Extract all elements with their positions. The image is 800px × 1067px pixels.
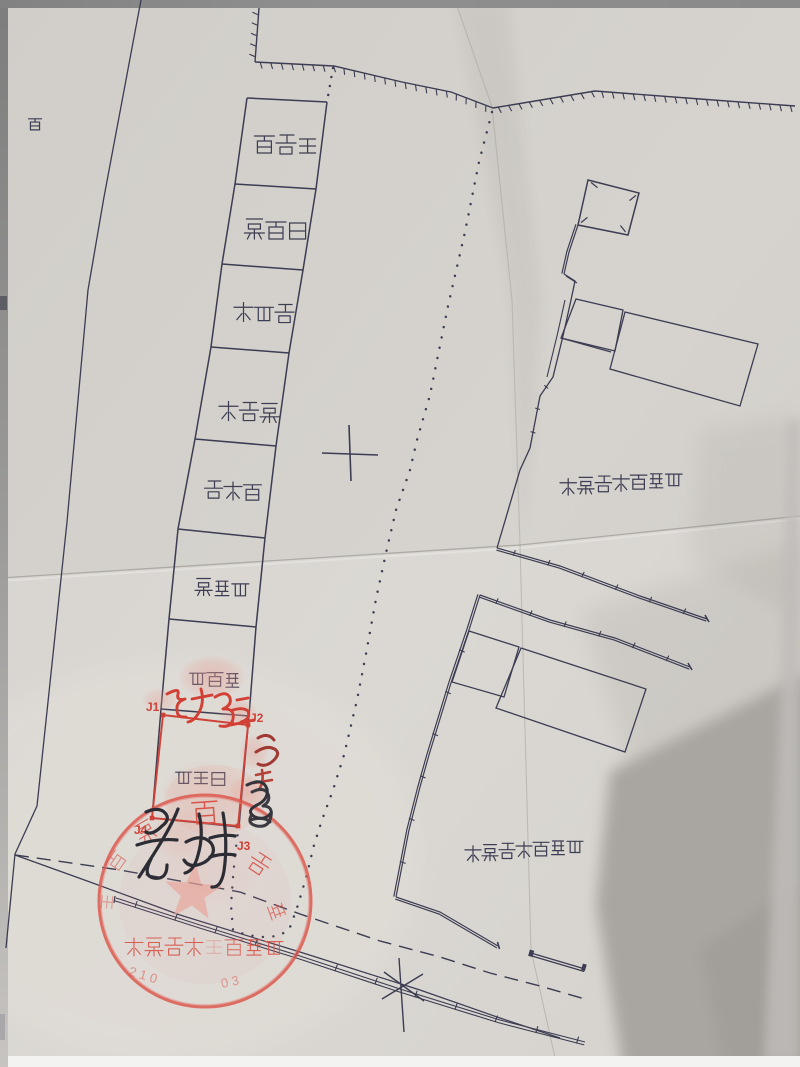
svg-text:J2: J2 xyxy=(250,711,264,725)
svg-text:J1: J1 xyxy=(146,700,160,714)
svg-text:J3: J3 xyxy=(237,839,251,853)
